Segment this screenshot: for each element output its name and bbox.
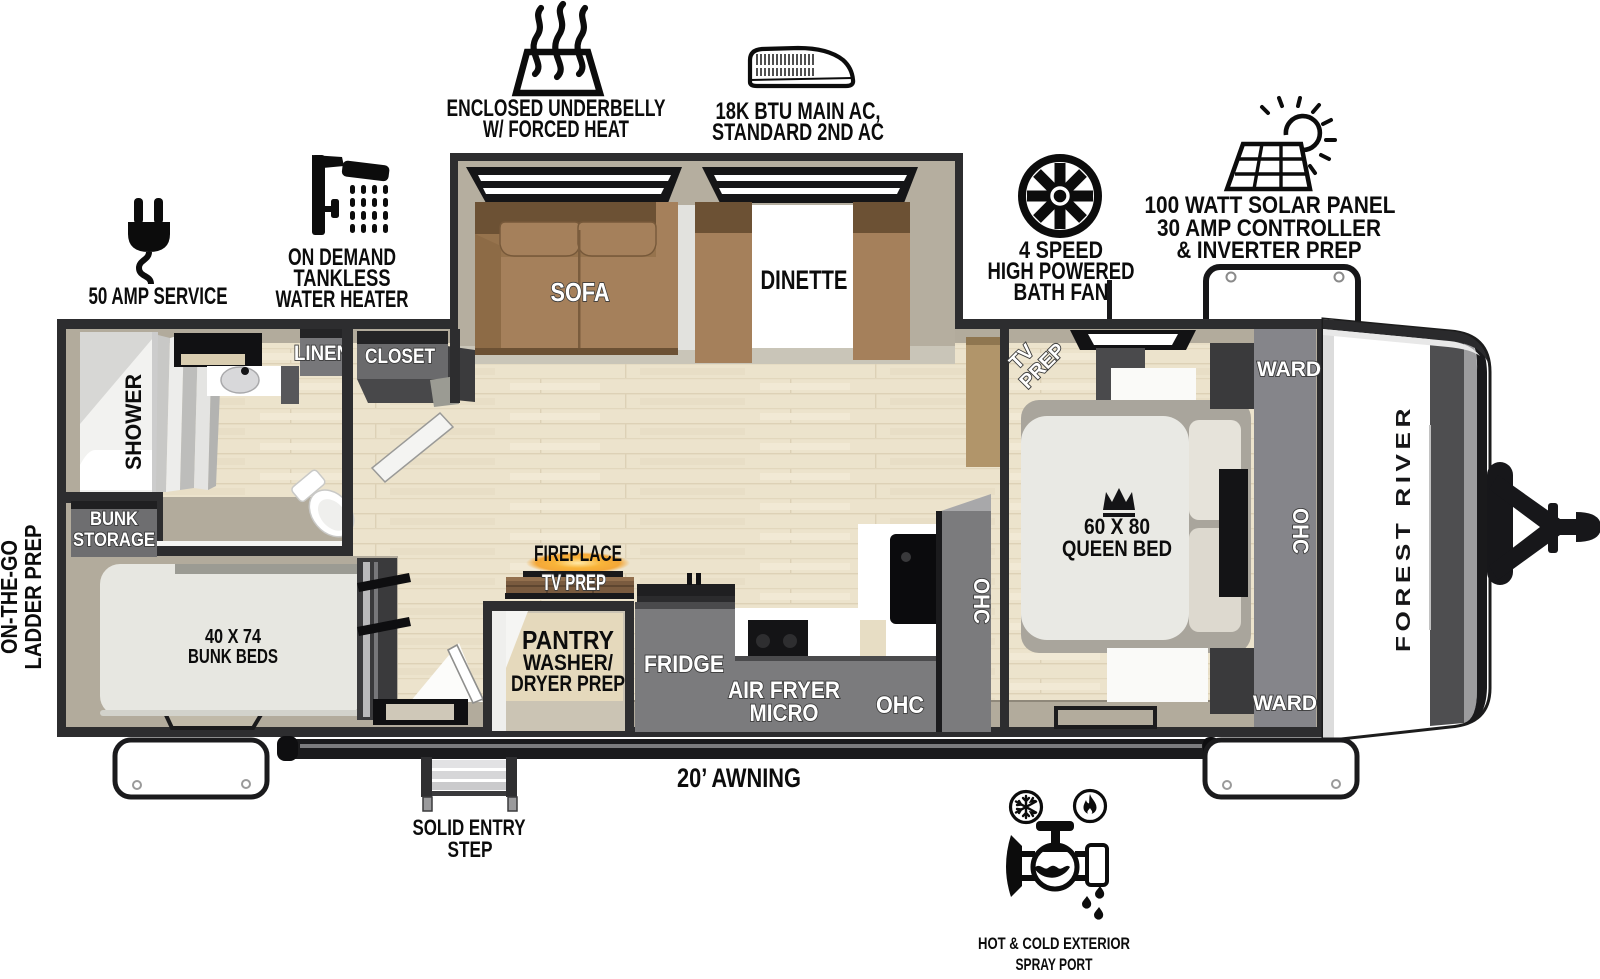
svg-text:OHC: OHC [1288,508,1313,554]
svg-text:STORAGE: STORAGE [73,530,155,551]
svg-text:WARD: WARD [1253,692,1317,715]
svg-text:DINETTE: DINETTE [761,265,848,295]
svg-text:DRYER PREP: DRYER PREP [511,671,625,696]
svg-text:40 X 74: 40 X 74 [205,626,262,648]
svg-text:WATER HEATER: WATER HEATER [276,286,409,313]
svg-text:50 AMP SERVICE: 50 AMP SERVICE [89,283,228,310]
svg-text:BUNK BEDS: BUNK BEDS [188,646,278,668]
svg-text:STANDARD 2ND AC: STANDARD 2ND AC [712,119,884,146]
svg-text:20’ AWNING: 20’ AWNING [677,763,801,793]
svg-text:LADDER PREP: LADDER PREP [20,525,46,670]
svg-text:BUNK: BUNK [90,509,138,530]
svg-text:STEP: STEP [448,837,493,862]
svg-text:SOFA: SOFA [551,277,610,307]
svg-text:SPRAY PORT: SPRAY PORT [1016,955,1093,974]
svg-text:W/ FORCED HEAT: W/ FORCED HEAT [483,116,629,143]
svg-text:HOT & COLD EXTERIOR: HOT & COLD EXTERIOR [978,934,1130,953]
svg-text:FOREST RIVER: FOREST RIVER [1393,404,1415,652]
svg-text:TV PREP: TV PREP [542,570,606,595]
svg-text:BATH FAN: BATH FAN [1014,279,1109,306]
svg-text:FRIDGE: FRIDGE [644,651,724,678]
svg-text:OHC: OHC [876,692,924,719]
svg-text:& INVERTER PREP: & INVERTER PREP [1177,237,1362,264]
svg-text:FIREPLACE: FIREPLACE [534,541,622,566]
svg-text:WARD: WARD [1257,358,1321,381]
svg-text:SHOWER: SHOWER [121,374,146,470]
svg-text:OHC: OHC [969,578,994,624]
svg-text:MICRO: MICRO [750,700,819,727]
svg-text:QUEEN BED: QUEEN BED [1062,536,1172,561]
svg-text:LINEN: LINEN [294,342,350,365]
svg-text:CLOSET: CLOSET [365,345,435,368]
svg-text:ON-THE-GO: ON-THE-GO [0,540,22,654]
